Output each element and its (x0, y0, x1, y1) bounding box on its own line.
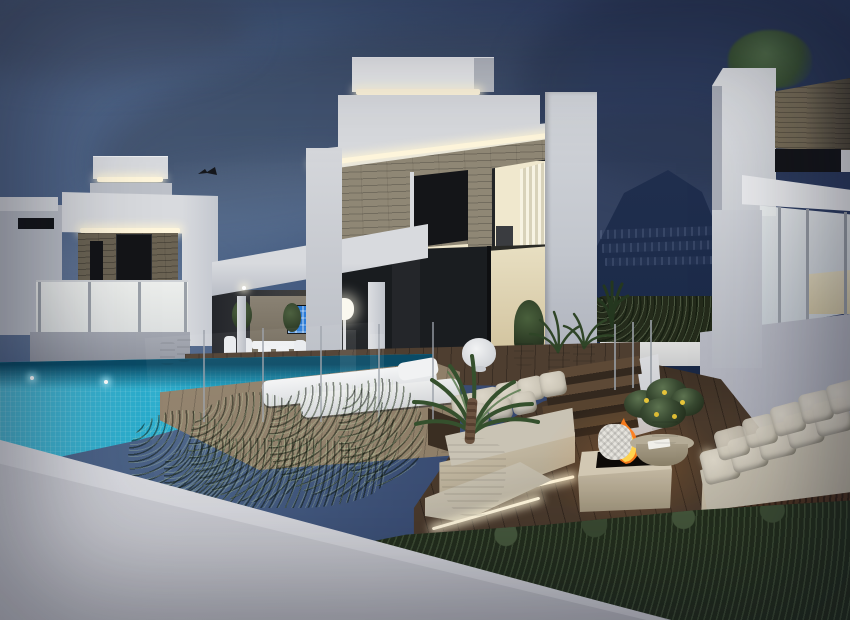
lemon (672, 414, 677, 419)
pool-light (30, 376, 34, 380)
left-villa-roofbox (93, 157, 168, 179)
fire-pit-body (578, 469, 672, 512)
main-villa-roof-led (356, 89, 480, 95)
balcony-post (88, 282, 91, 334)
lemon-tree-pot (652, 420, 678, 444)
balcony-post (778, 207, 781, 325)
canopy-downlight (242, 286, 246, 290)
right-villa-window-band (775, 149, 841, 172)
balcony-post (38, 282, 41, 334)
right-villa-window-post (841, 150, 850, 172)
bg-villa-parapet (0, 197, 58, 211)
balcony-post (844, 212, 847, 315)
glass-reflection-wide (145, 322, 386, 498)
lemon (644, 398, 649, 403)
balcony-post (138, 282, 141, 334)
lemon (654, 412, 659, 417)
palm-pot (440, 438, 506, 516)
left-villa-balcony-glass (36, 282, 188, 334)
balcony-post (184, 282, 187, 334)
left-villa-roof-led (97, 177, 163, 182)
pool-light (104, 380, 108, 384)
lemon (662, 390, 667, 395)
right-villa-tower-side (712, 86, 722, 216)
bg-villa-window-band (18, 218, 54, 229)
stair-glass-post (614, 324, 616, 390)
right-villa-tower-lower (712, 210, 762, 368)
villa-dusk-render (0, 0, 850, 620)
balcony-post (806, 209, 809, 321)
lemon (680, 400, 685, 405)
main-villa-roof-slab (352, 58, 494, 92)
bird-icon (198, 167, 218, 177)
window-blinds (520, 162, 546, 252)
